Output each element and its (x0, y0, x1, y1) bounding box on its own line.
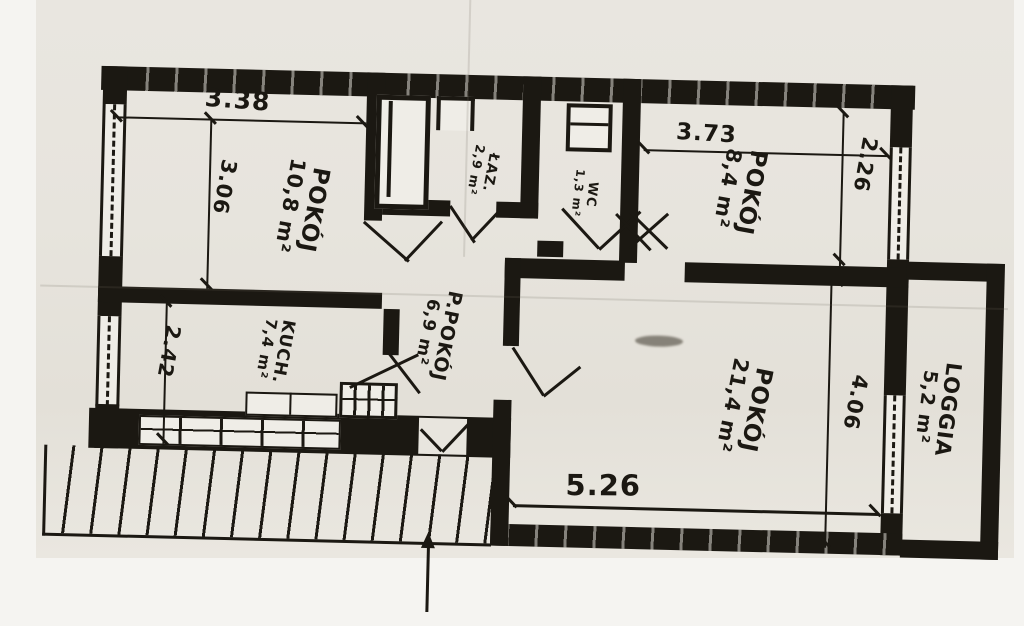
window-right-loggia-door (881, 395, 906, 514)
door-swing-bigroom (543, 366, 582, 398)
wall-bigroom-left-stub (503, 258, 521, 346)
room-label-pokoj-108: POKÓJ 10,8 m² (270, 156, 334, 259)
room-area: 1,3 m² (569, 168, 587, 217)
room-label-kuchnia: KUCH. 7,4 m² (252, 315, 298, 385)
room-label-pokoj-214: POKÓJ 21,4 m² (712, 356, 777, 459)
washbasin (436, 96, 475, 131)
dimension-right-upper: 2.26 (848, 135, 882, 194)
floor-plan: 3.38 3.06 3.73 2.26 2.42 4.06 5.26 POKÓJ… (0, 0, 1024, 626)
window-left-lower (95, 316, 121, 407)
room-label-ppokoj: P.POKÓJ 6,9 m² (409, 285, 465, 383)
wall-room84-south-b (684, 262, 908, 287)
wall-right-exterior-a (890, 85, 914, 148)
dimension-left-upper: 3.06 (208, 157, 242, 216)
entrance-arrow (425, 546, 430, 612)
window-dash (109, 104, 116, 256)
wall-bigroom-left (490, 400, 512, 546)
dim-line-4.06 (824, 280, 833, 548)
window-left-upper (99, 104, 127, 257)
dimension-right-lower: 4.06 (838, 373, 873, 432)
wall-wc-south-stub (537, 241, 563, 258)
window-dash (106, 316, 111, 406)
entrance-arrow-icon (421, 532, 435, 548)
door-swing-room108 (404, 221, 443, 262)
room-label-pokoj-84: POKÓJ 8,4 m² (709, 144, 771, 237)
toilet-cistern (566, 103, 613, 152)
room-label-wc: WC 1,3 m² (569, 168, 601, 219)
dimension-bottom: 5.26 (565, 468, 641, 503)
door-swing-bigroom (512, 347, 545, 397)
dimension-top-left: 3.38 (204, 83, 272, 117)
dimension-left-lower: 2.42 (153, 323, 186, 380)
dim-line-2.26 (839, 112, 845, 266)
wall-left-exterior-a (103, 66, 128, 105)
scanned-floor-plan-page: { "scan": { "ink_color": "#1b1812", "pap… (0, 0, 1024, 614)
dim-line-3.38 (118, 116, 366, 124)
door-swing-bath (470, 206, 504, 241)
room-label-lazienka: ŁAZ. 2,9 m² (464, 143, 502, 199)
room-label-loggia: LOGGIA 5,2 m² (910, 359, 965, 459)
wall-bath-wc (520, 76, 541, 218)
wall-room84-south-a (505, 258, 625, 281)
window-dash (897, 147, 903, 259)
wall-bottom-exterior (490, 524, 902, 556)
window-dash (890, 395, 896, 513)
door-swing-room108 (363, 221, 410, 263)
window-kitchen-south (138, 415, 341, 450)
window-right-loggia-upper (887, 147, 912, 260)
wall-bath-south-b (496, 202, 538, 219)
kitchen-stove (339, 382, 398, 419)
bathtub (374, 95, 431, 210)
loggia-wall-bottom (900, 540, 998, 560)
ink-smudge (635, 335, 683, 347)
wall-kitchen-right-a (383, 309, 400, 355)
